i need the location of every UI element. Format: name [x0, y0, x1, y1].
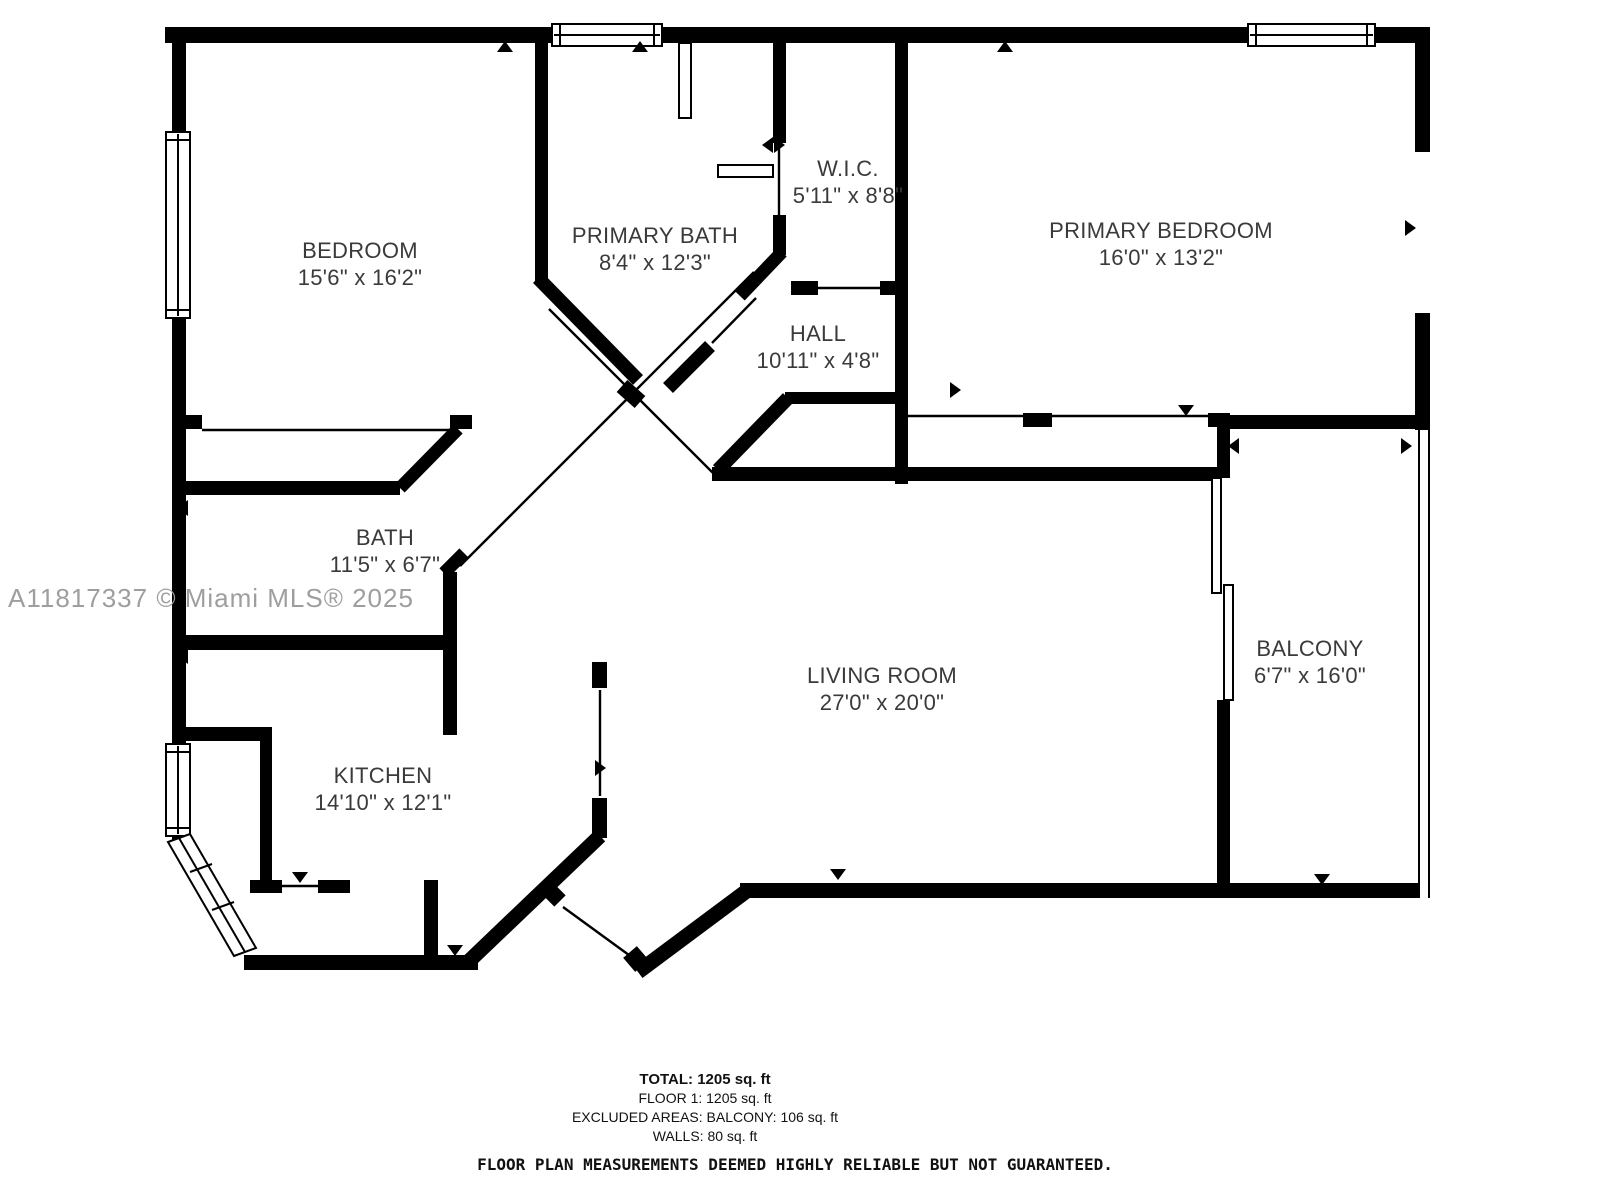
- excluded-area: EXCLUDED AREAS: BALCONY: 106 sq. ft: [572, 1108, 838, 1127]
- diagonal-walls-layer: [400, 252, 788, 972]
- room-label-hall: HALL 10'11" x 4'8": [757, 320, 880, 374]
- room-label-kitchen: KITCHEN 14'10" x 12'1": [314, 762, 451, 816]
- floor-plan: BEDROOM 15'6" x 16'2" PRIMARY BATH 8'4" …: [0, 0, 1600, 1200]
- walls-area: WALLS: 80 sq. ft: [572, 1127, 838, 1146]
- room-name: W.I.C.: [793, 155, 903, 182]
- room-dimensions: 15'6" x 16'2": [298, 264, 423, 291]
- room-label-primary-bedroom: PRIMARY BEDROOM 16'0" x 13'2": [1049, 217, 1273, 271]
- room-label-living-room: LIVING ROOM 27'0" x 20'0": [807, 662, 957, 716]
- room-name: LIVING ROOM: [807, 662, 957, 689]
- area-summary: TOTAL: 1205 sq. ft FLOOR 1: 1205 sq. ft …: [572, 1070, 838, 1146]
- room-dimensions: 27'0" x 20'0": [807, 689, 957, 716]
- disclaimer-text: FLOOR PLAN MEASUREMENTS DEEMED HIGHLY RE…: [477, 1155, 1113, 1174]
- room-name: BEDROOM: [298, 237, 423, 264]
- room-label-balcony: BALCONY 6'7" x 16'0": [1254, 635, 1366, 689]
- room-label-bath: BATH 11'5" x 6'7": [330, 524, 440, 578]
- room-dimensions: 11'5" x 6'7": [330, 551, 440, 578]
- room-name: BATH: [330, 524, 440, 551]
- room-dimensions: 10'11" x 4'8": [757, 347, 880, 374]
- room-name: BALCONY: [1254, 635, 1366, 662]
- room-name: KITCHEN: [314, 762, 451, 789]
- floor1-area: FLOOR 1: 1205 sq. ft: [572, 1089, 838, 1108]
- room-dimensions: 5'11" x 8'8": [793, 182, 903, 209]
- room-name: PRIMARY BATH: [572, 222, 738, 249]
- room-name: PRIMARY BEDROOM: [1049, 217, 1273, 244]
- room-dimensions: 16'0" x 13'2": [1049, 244, 1273, 271]
- room-dimensions: 14'10" x 12'1": [314, 789, 451, 816]
- total-area: TOTAL: 1205 sq. ft: [572, 1070, 838, 1089]
- room-dimensions: 6'7" x 16'0": [1254, 662, 1366, 689]
- room-name: HALL: [757, 320, 880, 347]
- room-dimensions: 8'4" x 12'3": [572, 249, 738, 276]
- room-label-primary-bath: PRIMARY BATH 8'4" x 12'3": [572, 222, 738, 276]
- room-label-wic: W.I.C. 5'11" x 8'8": [793, 155, 903, 209]
- room-label-bedroom: BEDROOM 15'6" x 16'2": [298, 237, 423, 291]
- mls-watermark: A11817337 © Miami MLS® 2025: [8, 583, 414, 614]
